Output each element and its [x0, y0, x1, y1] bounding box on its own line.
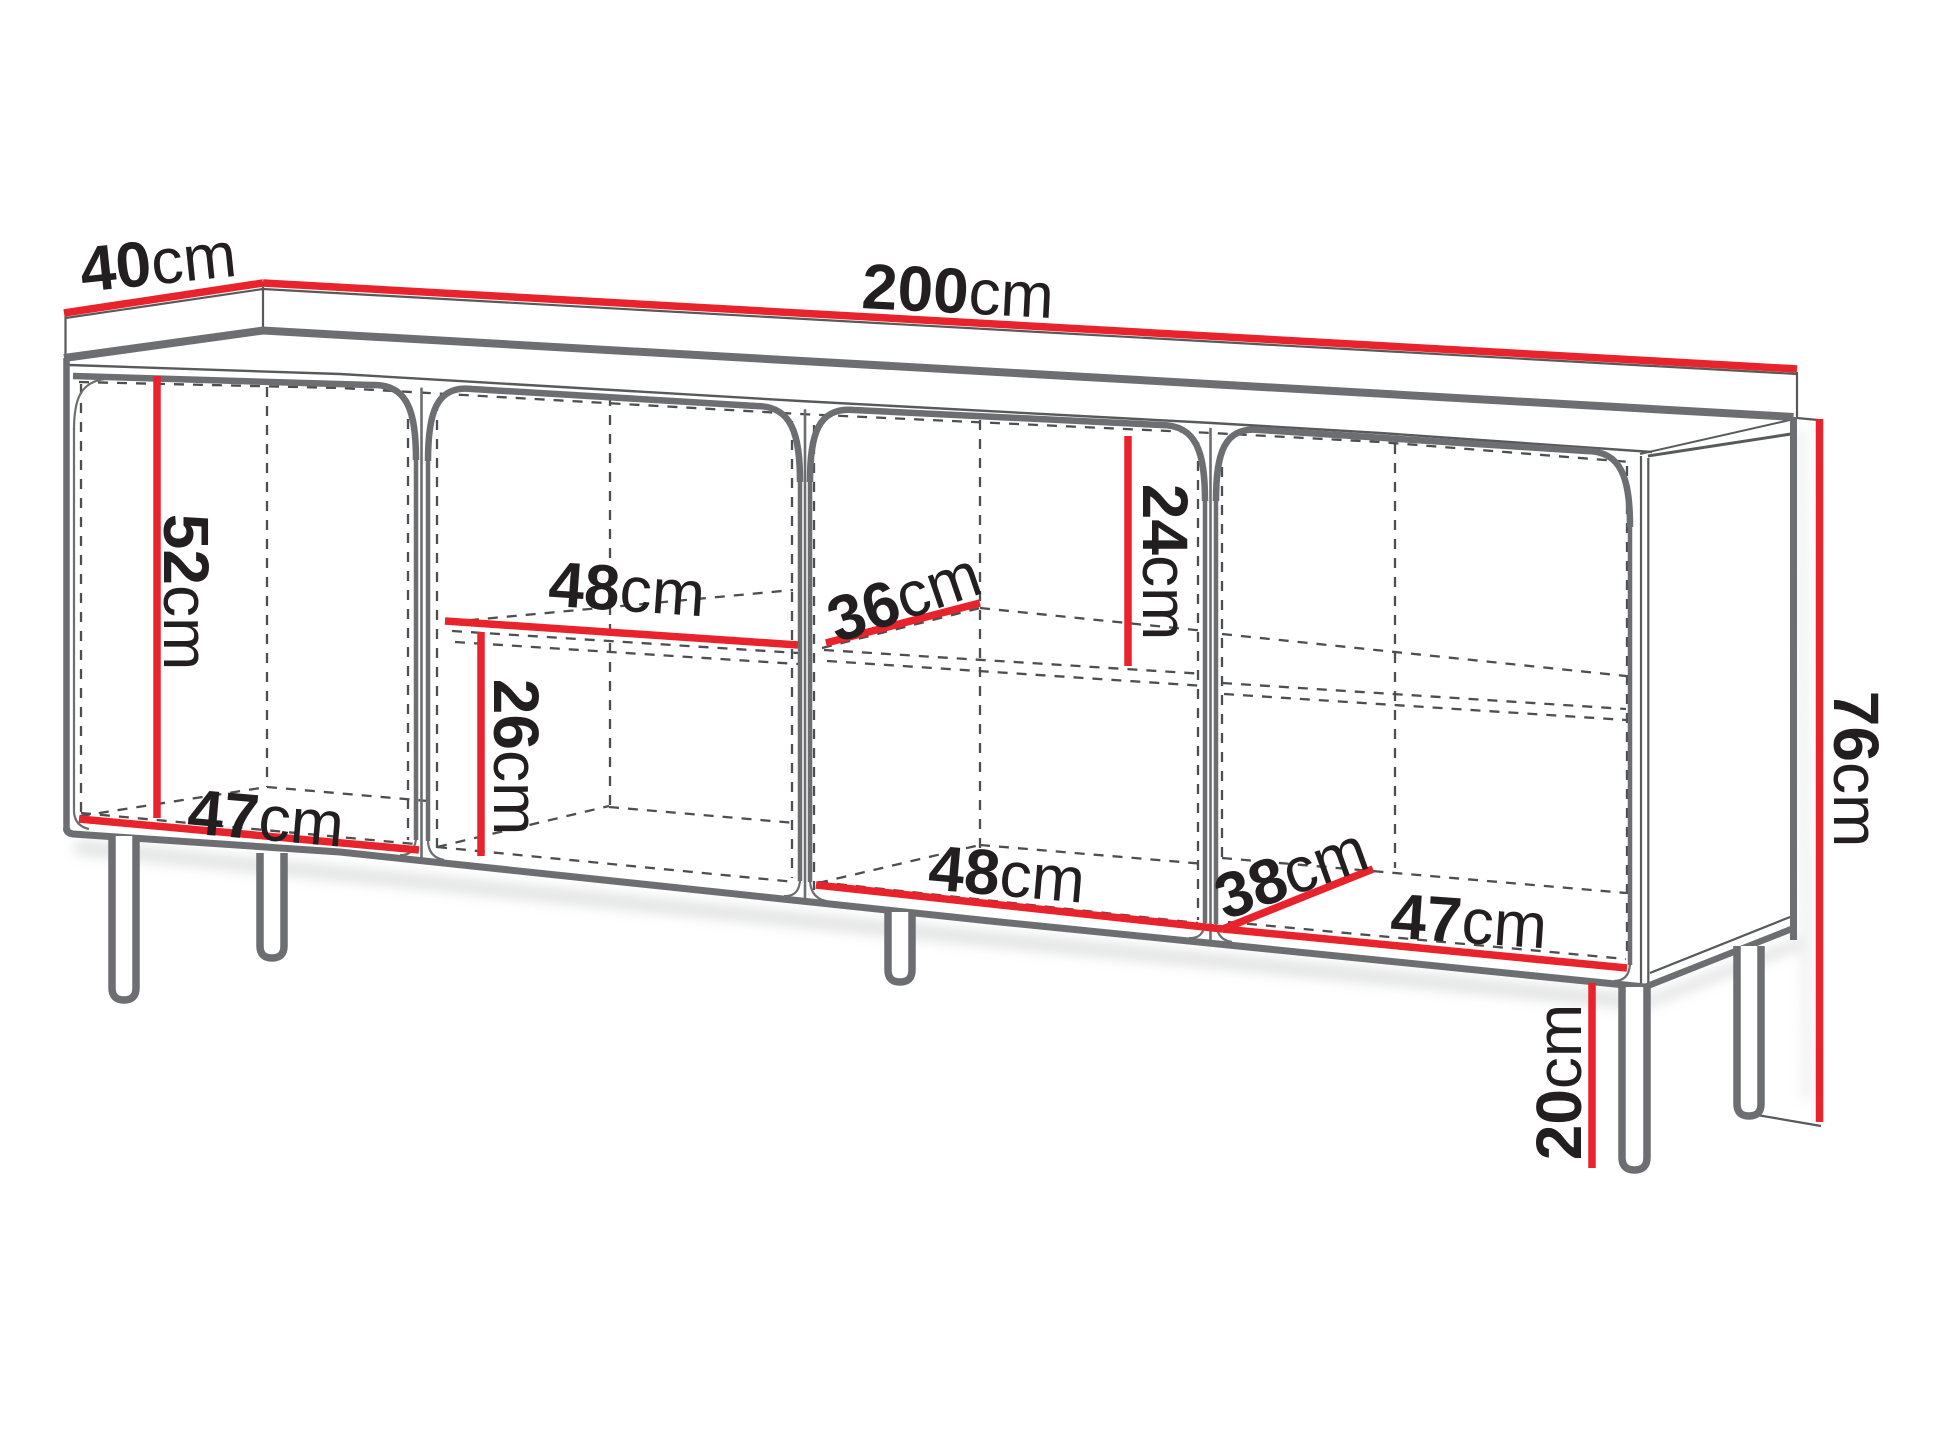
svg-text:26cm: 26cm: [480, 679, 552, 836]
svg-text:47cm: 47cm: [185, 775, 347, 860]
svg-text:47cm: 47cm: [1388, 880, 1549, 963]
svg-text:48cm: 48cm: [546, 548, 707, 631]
svg-text:52cm: 52cm: [150, 514, 222, 671]
svg-text:24cm: 24cm: [1129, 484, 1201, 641]
svg-text:20cm: 20cm: [1523, 1004, 1595, 1161]
svg-text:200cm: 200cm: [860, 250, 1056, 332]
svg-text:48cm: 48cm: [926, 831, 1088, 916]
svg-text:76cm: 76cm: [1820, 691, 1892, 848]
